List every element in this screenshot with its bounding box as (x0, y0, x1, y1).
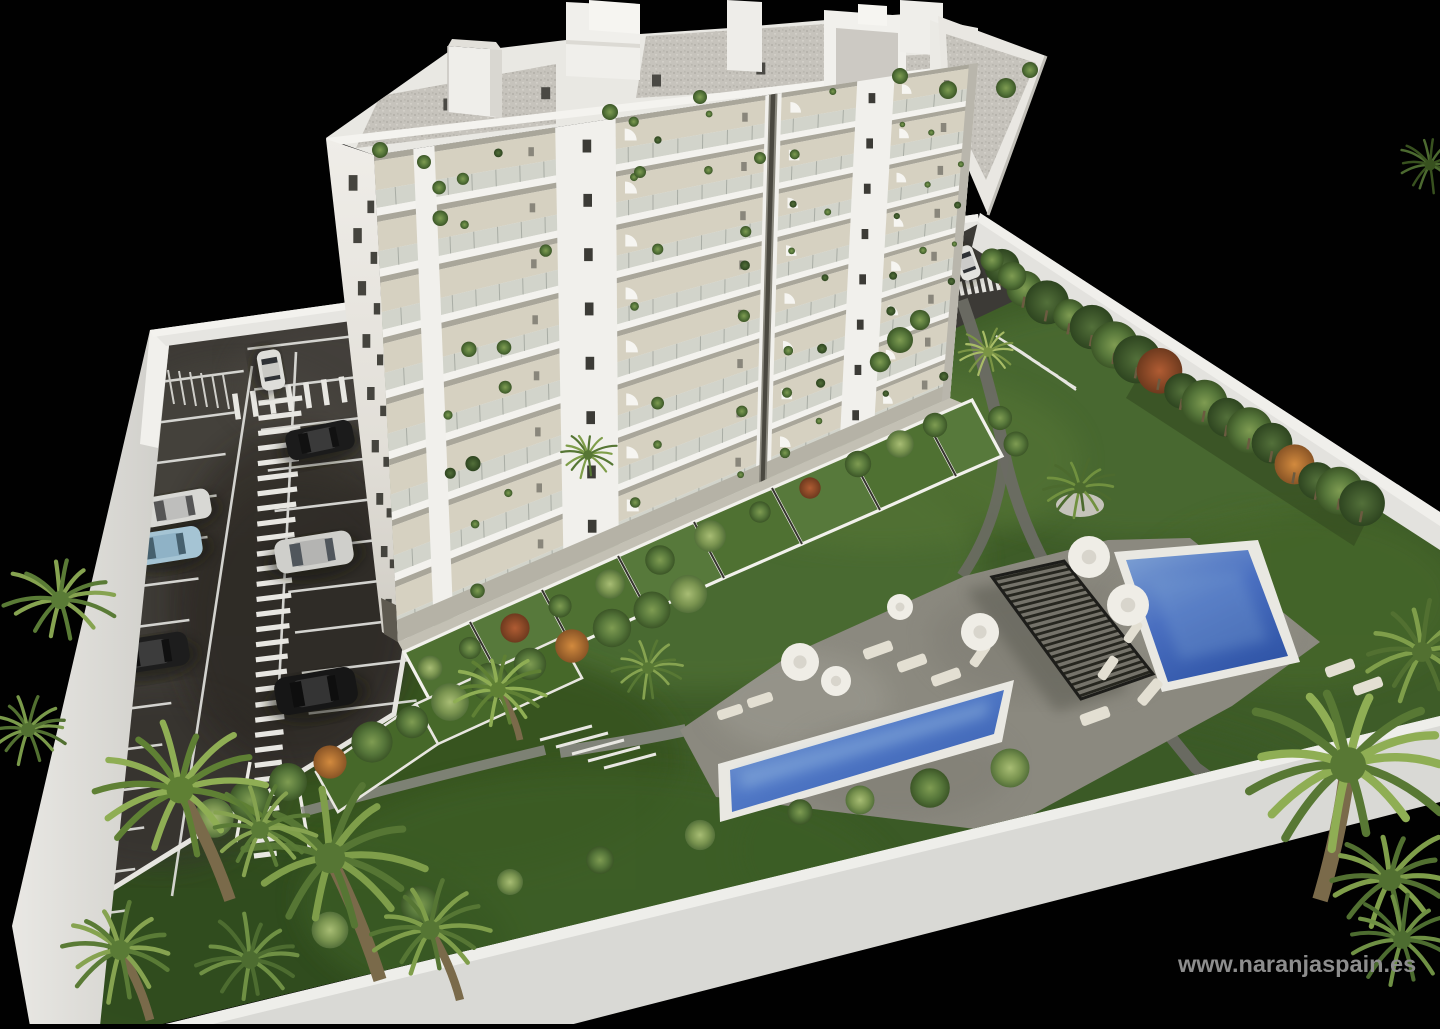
svg-text:www.naranjaspain.es: www.naranjaspain.es (1177, 951, 1416, 977)
